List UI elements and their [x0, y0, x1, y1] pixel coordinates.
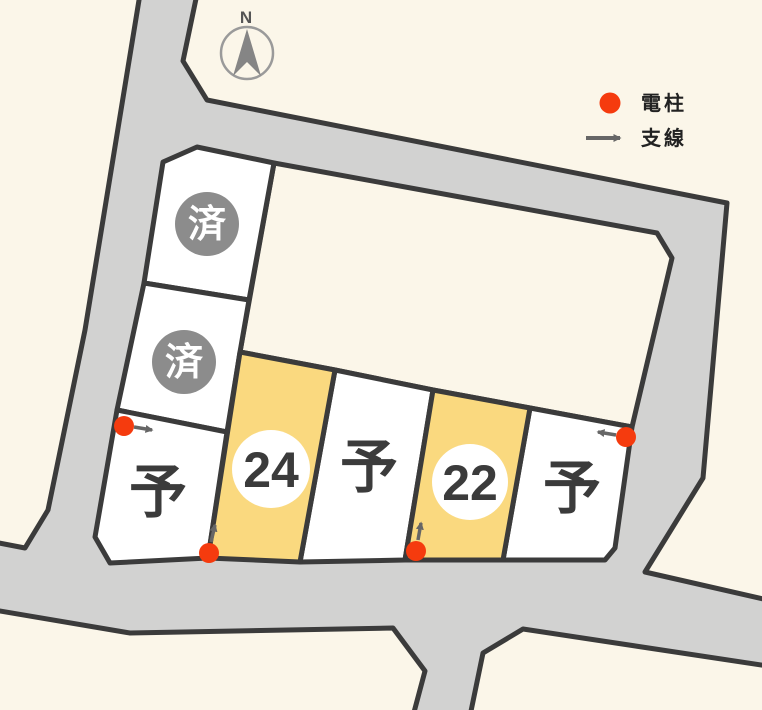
legend-utility-pole-label: 電柱: [641, 91, 687, 115]
lot-map: 済 済 予 24 予 22 予 N 電柱 支線: [0, 0, 762, 710]
compass-north-label: N: [240, 8, 252, 27]
utility-pole-dot-1: [114, 416, 134, 436]
reserved-middle-label: 予: [340, 435, 398, 500]
legend-guy-wire-label: 支線: [641, 126, 687, 150]
legend-utility-pole-icon: [600, 93, 621, 114]
utility-pole-dot-2: [616, 427, 636, 447]
utility-pole-dot-3: [199, 543, 219, 563]
sold-badge-lower-label: 済: [165, 342, 204, 384]
lot-22-number: 22: [442, 455, 498, 511]
sold-badge-upper-label: 済: [188, 204, 227, 246]
reserved-left-label: 予: [129, 460, 187, 525]
utility-pole-dot-4: [406, 541, 426, 561]
reserved-right-label: 予: [543, 456, 601, 521]
lot-24-number: 24: [243, 442, 299, 498]
